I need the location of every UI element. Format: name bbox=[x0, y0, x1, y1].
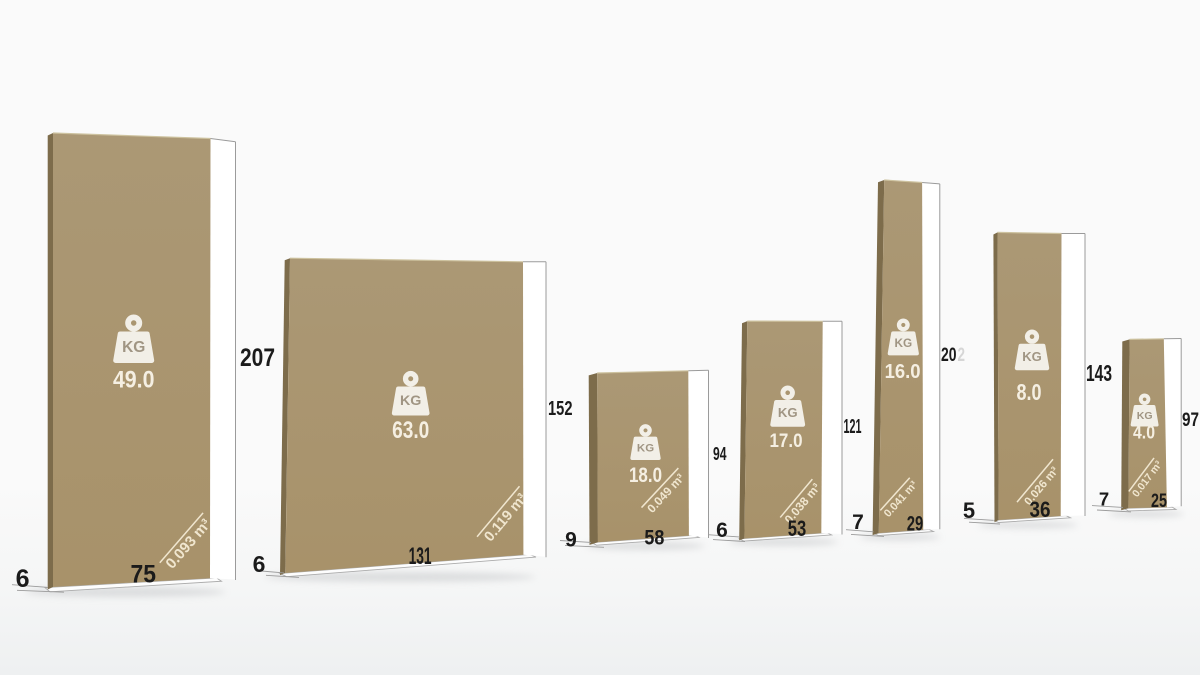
svg-text:131: 131 bbox=[409, 543, 432, 570]
svg-text:17.0: 17.0 bbox=[770, 431, 803, 452]
svg-text:121: 121 bbox=[844, 415, 862, 438]
svg-text:6: 6 bbox=[253, 551, 266, 577]
svg-text:18.0: 18.0 bbox=[629, 464, 662, 487]
svg-text:29: 29 bbox=[907, 513, 924, 536]
svg-text:2: 2 bbox=[958, 344, 966, 366]
svg-text:6: 6 bbox=[16, 565, 30, 593]
svg-text:6: 6 bbox=[716, 519, 728, 542]
svg-text:49.0: 49.0 bbox=[113, 366, 155, 393]
svg-text:152: 152 bbox=[548, 397, 573, 420]
svg-text:58: 58 bbox=[644, 526, 664, 549]
svg-text:7: 7 bbox=[1099, 489, 1109, 510]
svg-text:KG: KG bbox=[122, 339, 145, 356]
svg-text:143: 143 bbox=[1086, 360, 1112, 386]
svg-text:8.0: 8.0 bbox=[1017, 379, 1042, 405]
svg-text:97: 97 bbox=[1182, 410, 1199, 431]
svg-text:63.0: 63.0 bbox=[392, 417, 429, 444]
svg-text:53: 53 bbox=[788, 516, 807, 541]
svg-text:KG: KG bbox=[400, 393, 421, 409]
svg-text:25: 25 bbox=[1151, 491, 1167, 512]
svg-text:KG: KG bbox=[1022, 349, 1042, 364]
svg-text:207: 207 bbox=[240, 344, 275, 372]
svg-text:20: 20 bbox=[941, 344, 957, 366]
svg-text:4.0: 4.0 bbox=[1133, 422, 1155, 442]
svg-text:KG: KG bbox=[894, 337, 912, 350]
svg-text:KG: KG bbox=[637, 443, 654, 455]
svg-text:KG: KG bbox=[1137, 410, 1153, 422]
svg-text:7: 7 bbox=[852, 511, 864, 534]
svg-text:KG: KG bbox=[778, 405, 798, 420]
svg-text:36: 36 bbox=[1030, 497, 1051, 522]
svg-text:94: 94 bbox=[713, 443, 727, 464]
svg-text:75: 75 bbox=[131, 560, 157, 588]
svg-text:9: 9 bbox=[565, 529, 577, 552]
svg-text:5: 5 bbox=[963, 498, 975, 523]
svg-text:16.0: 16.0 bbox=[885, 361, 921, 383]
